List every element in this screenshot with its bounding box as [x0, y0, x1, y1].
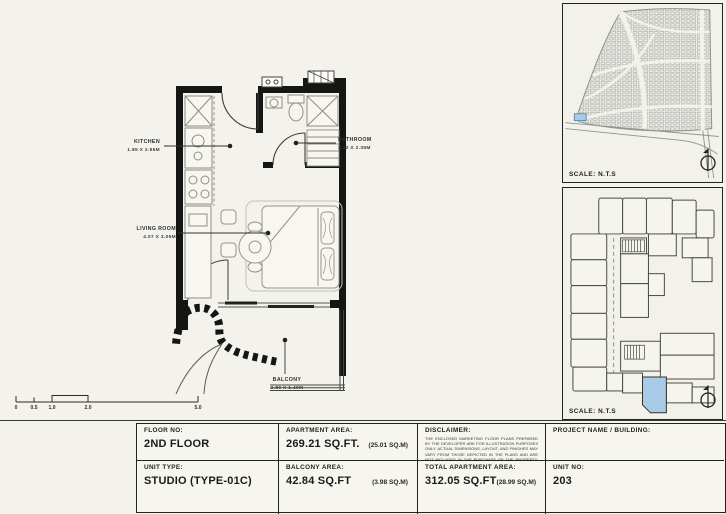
highlighted-parcel [574, 114, 586, 121]
floor-no-value: 2ND FLOOR [144, 438, 271, 450]
unit-type-cell: UNIT TYPE: STUDIO (TYPE-01C) [137, 460, 278, 514]
floor-no-label: FLOOR NO: [144, 427, 271, 434]
total-area-label: TOTAL APARTMENT AREA: [425, 464, 538, 471]
disclaimer-label: DISCLAIMER: [425, 427, 538, 434]
scale-tick-label: 0 [15, 405, 18, 411]
total-area-value: 312.05 SQ.FT [425, 475, 497, 487]
apartment-area-sqm: (25.01 SQ.M) [368, 442, 408, 449]
living-room-label: LIVING ROOM 4.07 X 3.05M [116, 226, 176, 241]
unit-type-label: UNIT TYPE: [144, 464, 271, 471]
floor-no-cell: FLOOR NO: 2ND FLOOR [137, 424, 278, 460]
location-map-panel: SCALE: N.T.S [562, 3, 723, 183]
wardrobe [307, 130, 339, 166]
room-name: LIVING ROOM [116, 226, 176, 234]
map-scale-label: SCALE: N.T.S [569, 171, 616, 178]
bed [262, 206, 339, 288]
entry-door [222, 93, 258, 129]
scale-bar: 0 0.5 1.0 2.0 5.0 [12, 391, 218, 417]
key-plan-scale-label: SCALE: N.T.S [569, 408, 616, 415]
highlighted-unit [642, 377, 666, 413]
kitchen-label: KITCHEN 1.85 X 2.95M [106, 139, 160, 154]
balcony-label: BALCONY 2.80 X 1.40M [255, 377, 319, 392]
balcony-area-value: 42.84 SQ.FT [286, 475, 351, 487]
floor-plan-sheet: { "floor_plan": { "rooms": [ {"name": "K… [0, 0, 726, 485]
scale-tick-label: 1.0 [49, 405, 56, 411]
balcony-area-label: BALCONY AREA: [286, 464, 410, 471]
unit-no-cell: UNIT NO: 203 [545, 460, 724, 514]
scale-tick-label: 5.0 [195, 405, 202, 411]
key-plan-panel: SCALE: N.T.S [562, 187, 723, 420]
apartment-area-cell: APARTMENT AREA: 269.21 SQ.FT. (25.01 SQ.… [278, 424, 417, 460]
unit-no-label: UNIT NO: [553, 464, 717, 471]
title-block: FLOOR NO: 2ND FLOOR APARTMENT AREA: 269.… [136, 423, 726, 513]
key-plan [563, 188, 721, 418]
unit-type-value: STUDIO (TYPE-01C) [144, 475, 271, 487]
bathroom-label: BATHROOM 2.12 X 2.35M [338, 137, 398, 152]
room-dims: 2.80 X 1.40M [255, 385, 319, 392]
balcony-area-cell: BALCONY AREA: 42.84 SQ.FT (3.98 SQ.M) [278, 460, 417, 514]
total-area-cell: TOTAL APARTMENT AREA: 312.05 SQ.FT (28.9… [417, 460, 545, 514]
unit-no-value: 203 [553, 475, 717, 487]
north-arrow-icon [699, 384, 717, 415]
project-name-cell: PROJECT NAME / BUILDING: [545, 424, 724, 460]
project-name-label: PROJECT NAME / BUILDING: [553, 427, 717, 434]
sheet-divider [0, 420, 726, 421]
kitchen-fixtures [185, 96, 214, 298]
room-name: BATHROOM [338, 137, 398, 145]
apartment-area-label: APARTMENT AREA: [286, 427, 410, 434]
sliding-door [218, 300, 341, 308]
scale-tick-label: 2.0 [85, 405, 92, 411]
disclaimer-text: THE ENCLOSED MARKETING FLOOR PLANS PREPA… [425, 436, 538, 460]
scale-tick-label: 0.5 [31, 405, 38, 411]
location-map [563, 4, 721, 181]
room-name: KITCHEN [106, 139, 160, 147]
apartment-area-value: 269.21 SQ.FT. [286, 438, 360, 450]
north-arrow-icon [699, 147, 717, 178]
room-name: BALCONY [255, 377, 319, 385]
bathroom-door [273, 133, 305, 165]
room-dims: 2.12 X 2.35M [338, 145, 398, 152]
scale-bar-line [12, 391, 218, 405]
bathroom-fixtures [266, 95, 338, 126]
room-dims: 1.85 X 2.95M [106, 147, 160, 154]
floor-plan-drawing [0, 0, 560, 420]
room-dims: 4.07 X 3.05M [116, 234, 176, 241]
disclaimer-cell: DISCLAIMER: THE ENCLOSED MARKETING FLOOR… [417, 424, 545, 460]
